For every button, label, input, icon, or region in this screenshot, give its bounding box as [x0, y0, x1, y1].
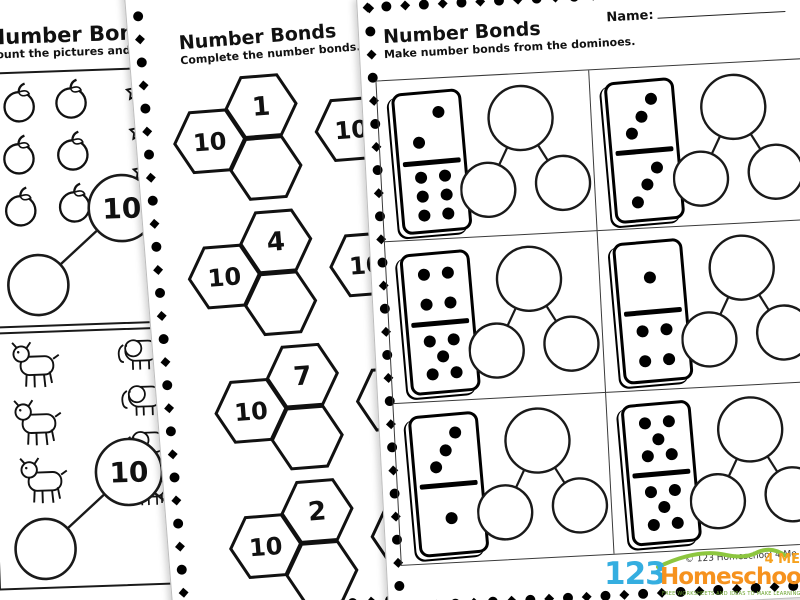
- name-field: Name:: [606, 0, 786, 25]
- domino-pip: [417, 268, 430, 281]
- number-bond: [455, 81, 594, 228]
- apple-picture: [49, 127, 97, 175]
- domino-problem-cell: [376, 70, 597, 242]
- domino-pip: [641, 450, 654, 463]
- domino-top-half: [626, 404, 691, 472]
- domino-problem-cell: [393, 393, 614, 565]
- bond-whole-value: 10: [102, 191, 142, 225]
- worksheet-preview: Number Bonds Count the pictures and co 1…: [0, 0, 800, 600]
- domino-bottom-half: [623, 312, 688, 380]
- domino-pip: [420, 298, 433, 311]
- hexagon-part: 2: [278, 476, 357, 546]
- decorative-border: [129, 0, 387, 1]
- svg-text:2: 2: [307, 496, 327, 527]
- domino-problem-cell: [598, 220, 800, 392]
- domino-top-half: [405, 254, 470, 322]
- apple-picture: [47, 75, 95, 123]
- domino-pip: [635, 110, 648, 123]
- domino-pip: [641, 178, 654, 191]
- hexagon-part: 7: [263, 341, 342, 411]
- domino-pip: [418, 209, 431, 222]
- domino-pip: [644, 485, 657, 498]
- hexagon-empty: [283, 538, 362, 600]
- domino-top-half: [617, 243, 682, 311]
- domino-bottom-half: [411, 323, 476, 391]
- number-bond: [668, 69, 800, 216]
- domino-pip: [437, 350, 450, 363]
- svg-text:7: 7: [292, 361, 312, 392]
- logo-tagline: FREE WORKSHEETS AND IDEAS TO MAKE LEARNI…: [662, 591, 800, 597]
- logo-word-text: Homeschool: [660, 564, 800, 590]
- svg-text:10: 10: [207, 262, 243, 293]
- domino-pip: [439, 443, 452, 456]
- number-bond: [684, 392, 800, 539]
- number-bond: [676, 230, 800, 377]
- domino-pip: [668, 483, 681, 496]
- domino-problem-cell: [589, 59, 800, 231]
- svg-text:10: 10: [192, 127, 228, 158]
- domino-pip: [416, 190, 429, 203]
- domino-pip: [432, 105, 445, 118]
- svg-text:4: 4: [266, 227, 286, 258]
- domino-pip: [636, 325, 649, 338]
- hexagon-empty: [227, 133, 306, 203]
- domino-top-half: [413, 416, 478, 484]
- domino-pip: [450, 366, 463, 379]
- hexagon-part: 4: [236, 207, 315, 277]
- domino-bottom-half: [419, 484, 484, 552]
- domino-pip: [441, 266, 454, 279]
- domino-pip: [647, 518, 660, 531]
- number-bond: [472, 403, 611, 550]
- number-bond: [463, 242, 602, 389]
- logo-123-text: 123: [604, 556, 666, 592]
- domino-pip: [415, 171, 428, 184]
- domino-pip: [650, 161, 663, 174]
- domino-pip: [639, 356, 652, 369]
- domino-pip: [413, 136, 426, 149]
- worksheet-page-dominoes: Number Bonds Make number bonds from the …: [356, 0, 800, 600]
- domino-pip: [665, 448, 678, 461]
- domino-top-half: [396, 93, 461, 161]
- domino-pip: [660, 323, 673, 336]
- name-label: Name:: [606, 8, 654, 25]
- domino-problem-cell: [385, 231, 606, 403]
- domino-pip: [447, 333, 460, 346]
- domino-pip: [663, 353, 676, 366]
- domino-pip: [445, 512, 458, 525]
- domino-pip: [442, 207, 455, 220]
- domino-problems-grid: [375, 58, 800, 566]
- svg-text:10: 10: [248, 532, 284, 563]
- 123homeschool-logo: 123 Homeschool 4 ME FREE WORKSHEETS AND …: [602, 548, 800, 600]
- domino-pip: [426, 368, 439, 381]
- domino-pip: [643, 271, 656, 284]
- domino-pip: [440, 188, 453, 201]
- domino-pip: [444, 296, 457, 309]
- hexagon-empty: [241, 268, 320, 338]
- name-blank-line: [657, 0, 786, 19]
- domino-pip: [626, 127, 639, 140]
- domino-pip: [638, 417, 651, 430]
- domino-pip: [632, 196, 645, 209]
- domino-bottom-half: [615, 150, 680, 218]
- domino-pip: [448, 426, 461, 439]
- domino-bottom-half: [402, 162, 467, 230]
- domino-pip: [423, 335, 436, 348]
- apple-picture: [0, 79, 43, 127]
- domino-bottom-half: [632, 473, 697, 541]
- logo-4me-text: 4 ME: [765, 552, 800, 567]
- apple-picture: [0, 131, 43, 179]
- domino-top-half: [609, 82, 674, 150]
- hexagon-empty: [268, 403, 347, 473]
- bond-whole-value: 10: [109, 455, 149, 489]
- svg-text:1: 1: [251, 91, 271, 122]
- domino-pip: [662, 415, 675, 428]
- hexagon-part: 1: [222, 71, 301, 141]
- goat-picture: [0, 338, 62, 392]
- domino-pip: [439, 169, 452, 182]
- domino-pip: [652, 432, 665, 445]
- svg-text:10: 10: [233, 397, 269, 428]
- domino-problem-cell: [606, 381, 800, 553]
- domino-pip: [430, 461, 443, 474]
- domino-pip: [658, 500, 671, 513]
- domino-pip: [671, 516, 684, 529]
- domino-pip: [644, 93, 657, 106]
